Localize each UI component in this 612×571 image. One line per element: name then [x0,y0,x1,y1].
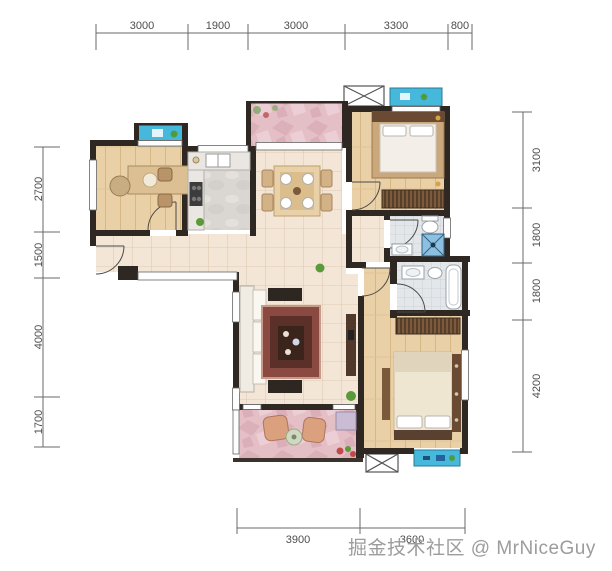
dim-label: 3100 [531,148,543,172]
stove-icon [190,182,203,206]
chair-icon [158,168,172,181]
bedroom-top-window [392,107,440,112]
headboard-icon [394,430,452,440]
wardrobe-icon [396,318,460,334]
dim-label: 800 [451,20,469,32]
plate-icon [303,174,314,185]
tv-cabinet-icon [346,314,356,376]
flower-icon [263,112,269,118]
planter-icon [336,412,356,430]
dim-label: 3900 [286,534,310,546]
teacup-icon [283,331,289,337]
toilet-icon [422,221,438,233]
toilet-icon [428,268,442,279]
teapot-icon [293,339,300,346]
lounge-icon [436,455,445,461]
toilet-tank-icon [422,216,438,221]
dim-label: 3000 [284,20,308,32]
wardrobe-icon [382,190,444,208]
plant-icon [421,94,427,100]
lounge-chair-icon [262,414,289,441]
master-window [462,350,469,400]
plant-icon [345,446,351,452]
coffee-table-icon [278,326,304,360]
easel-icon [152,129,163,137]
plant-icon [316,264,325,273]
dim-label: 4000 [33,325,45,349]
floor-plan-image: 3000 1900 3000 3300 800 2700 1500 4000 1… [0,0,612,571]
bench-icon [382,368,390,420]
bay-window-top-right [390,88,442,106]
balcony-top-left-window [138,141,182,147]
chair-icon [262,194,273,211]
balcony-door-window-1 [243,405,261,410]
plant-icon [346,391,356,401]
kitchen-window [198,146,248,153]
plant-icon [171,131,178,138]
sofa-icon [240,286,254,392]
plate-icon [281,174,292,185]
ac-platform-top [344,86,384,106]
pillow-icon [410,126,433,136]
dim-label: 1900 [206,20,230,32]
wall-lamp-icon [436,116,441,121]
dim-label: 1800 [531,279,543,303]
window-sill-icon [423,456,430,460]
chair-icon [321,194,332,211]
balcony-side-window [233,410,239,454]
terrace-top-floor [250,102,342,146]
plate-icon [281,198,292,209]
plant-icon [449,455,455,461]
plate-icon [303,198,314,209]
plant-icon [272,105,278,111]
plant-icon [196,218,204,226]
dim-label: 1500 [33,243,45,267]
shower-icon [422,234,444,256]
entry-step-window [138,272,237,280]
dim-label: 1800 [531,223,543,247]
chair-icon [321,170,332,187]
watermark: 掘金技术社区 @ MrNiceGuy [348,533,612,560]
dim-label: 3300 [384,20,408,32]
headboard-icon [372,112,444,122]
floor-plan-page: 3000 1900 3000 3300 800 2700 1500 4000 1… [0,0,612,571]
centerpiece-icon [293,187,301,195]
balcony-door-window-2 [333,405,355,410]
plant-icon [253,106,261,114]
easel-icon [400,93,410,100]
flower-icon [350,451,356,457]
side-table-icon [268,380,302,393]
dim-label: 2700 [33,177,45,201]
bowl-icon [193,157,199,163]
pillow-icon [397,416,422,428]
pillow-icon [383,126,406,136]
armchair-icon [110,176,130,196]
bath1-window [444,218,451,238]
blanket-icon [394,352,452,372]
dim-label: 4200 [531,374,543,398]
lounge-chair-icon [302,417,327,444]
bathtub-icon [446,265,461,309]
ac-platform-bottom [366,454,398,472]
chair-icon [158,194,172,207]
side-table-icon [268,288,302,301]
flower-icon [337,448,344,455]
dining-terrace-door [256,143,342,151]
teacup-icon [285,349,291,355]
room-bedroom-top [372,112,444,208]
wall-lamp-icon [436,182,441,187]
dim-label: 3000 [130,20,154,32]
desk-lamp-icon [143,173,157,187]
dim-label: 1700 [33,410,45,434]
chair-icon [262,170,273,187]
pillow-icon [425,416,450,428]
living-window-1 [233,292,240,322]
study-window [90,160,97,210]
hallway-floor [352,216,384,262]
living-window-2 [233,388,240,410]
tv-icon [348,330,354,340]
